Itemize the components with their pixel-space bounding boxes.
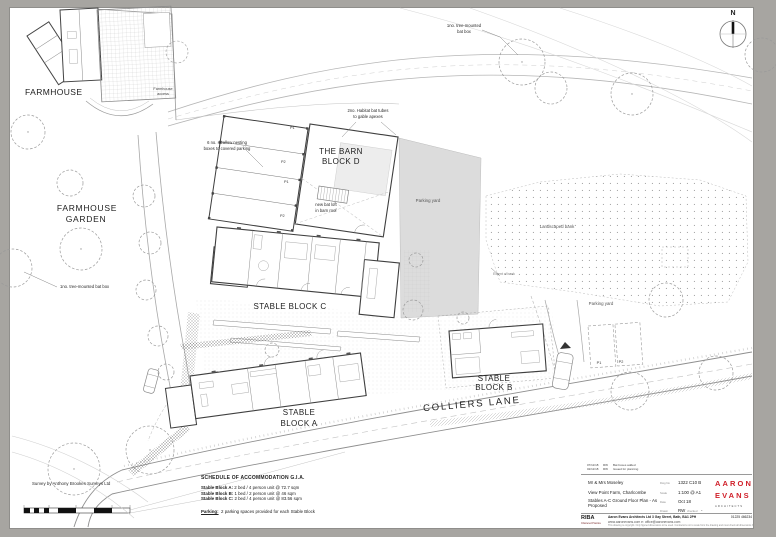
schedule-row-a-name: Stable Block A: bbox=[201, 485, 233, 490]
titleblock-divider bbox=[581, 474, 752, 475]
accommodation-schedule: SCHEDULE OF ACCOMMODATION G.I.A. Stable … bbox=[201, 475, 305, 481]
barn-label: THE BARN bbox=[319, 148, 363, 157]
riba-sub-label: Chartered Practice bbox=[581, 522, 601, 525]
barn-label2: BLOCK D bbox=[322, 158, 360, 167]
stable-c-label: STABLE BLOCK C bbox=[253, 303, 326, 312]
farmhouse-garden-label2: GARDEN bbox=[66, 215, 107, 225]
north-arrow-icon bbox=[720, 20, 746, 48]
drawn-label: Drawn bbox=[660, 509, 668, 513]
copyright-note: This drawing is copyright. Only figured … bbox=[608, 524, 753, 527]
rev-date: 02/11/18 bbox=[587, 468, 603, 472]
parking-yard-label: Parking yard bbox=[416, 199, 441, 204]
schedule-title: SCHEDULE OF ACCOMMODATION G.I.A. bbox=[201, 475, 305, 481]
stable-a-label2: BLOCK A bbox=[280, 420, 317, 429]
tree-bat-box-top-note2: bat box bbox=[457, 30, 471, 35]
schedule-row-b-name: Stable Block B: bbox=[201, 491, 233, 496]
schedule-row-a-desc: 2 bed / 4 person unit @ 72.7 sqm bbox=[234, 485, 299, 490]
parking-yard-right-label: Parking yard bbox=[589, 302, 614, 307]
schedule-row-b-desc: 1 bed / 2 person unit @ 46 sqm bbox=[234, 491, 295, 496]
schedule-parking-label: Parking: bbox=[201, 509, 219, 514]
farmhouse-building bbox=[27, 6, 188, 116]
client-value: Mr & Mrs Moseley bbox=[588, 480, 623, 485]
schedule-row-c-name: Stable Block C: bbox=[201, 496, 233, 501]
extent-note-label: Extent of bank bbox=[493, 273, 515, 277]
riba-logo: RIBA bbox=[581, 515, 594, 521]
schedule-row-c-desc: 2 bed / 4 person unit @ 83.56 sqm bbox=[234, 496, 301, 501]
site-plan-drawing: FARMHOUSE Farmhouse access FARMHOUSE GAR… bbox=[0, 0, 776, 537]
rev-by: RW bbox=[603, 468, 613, 472]
bay-p1: P1 bbox=[290, 126, 295, 130]
drawing-title-value: Stables A-C Ground Floor Plan - As Propo… bbox=[588, 499, 660, 509]
revision-row: 02/11/18 RW Issued for planning bbox=[587, 468, 638, 472]
bat-loft-note2: in barn roof bbox=[315, 209, 336, 214]
bay-right-p2: P2 bbox=[619, 360, 624, 364]
farmhouse-access-label2: access bbox=[157, 92, 169, 96]
bay-p2b: P2 bbox=[280, 214, 285, 218]
bay-p1b: P1 bbox=[284, 180, 289, 184]
checked-value: - bbox=[701, 508, 702, 513]
bay-p2: P2 bbox=[281, 160, 286, 164]
farmhouse-label: FARMHOUSE bbox=[25, 88, 82, 98]
bat-tubes-note2: to gable apexes bbox=[353, 115, 383, 120]
project-value: View Point Farm, Charlcombe bbox=[588, 490, 646, 495]
schedule-row-a: Stable Block A: 2 bed / 4 person unit @ … bbox=[201, 485, 299, 490]
revision-table: 07/11/18 RW Bat boxes added 02/11/18 RW … bbox=[587, 464, 638, 471]
north-label: N bbox=[730, 10, 735, 18]
schedule-row-b: Stable Block B: 1 bed / 2 person unit @ … bbox=[201, 491, 296, 496]
date-label: Date bbox=[660, 500, 666, 504]
schedule-parking-row: Parking: 2 parking spaces provided for e… bbox=[201, 509, 315, 514]
tree-bat-box-left-note: 1no. tree-mounted bat box bbox=[60, 285, 109, 290]
farmhouse-garden-label: FARMHOUSE bbox=[57, 204, 117, 214]
scale-bar bbox=[24, 505, 130, 513]
scale-value: 1:100 @ A1 bbox=[678, 490, 701, 495]
logo-architects: ARCHITECTS bbox=[715, 505, 743, 508]
dwgno-label: Dwg No bbox=[660, 481, 670, 485]
bay-right-p1: P1 bbox=[597, 361, 602, 365]
date-value: Oct 18 bbox=[678, 499, 691, 504]
logo-aaron: AARON bbox=[715, 479, 755, 488]
survey-credit: Survey by Anthony Brookes Surveys Ltd bbox=[32, 482, 110, 487]
barn-building bbox=[295, 124, 398, 237]
car-left bbox=[143, 368, 160, 394]
schedule-parking-desc: 2 parking spaces provided for each Stabl… bbox=[221, 509, 315, 514]
checked-label: checked bbox=[687, 509, 697, 513]
covered-parking-building bbox=[208, 115, 309, 232]
stable-a-label: STABLE bbox=[283, 409, 316, 418]
dwgno-value: 1322 C10 B bbox=[678, 480, 701, 485]
swallow-boxes-note2: boxes to covered parking bbox=[204, 147, 251, 152]
plan-linework bbox=[0, 0, 776, 537]
schedule-row-c: Stable Block C: 2 bed / 4 person unit @ … bbox=[201, 496, 302, 501]
drawn-value: RW bbox=[678, 508, 685, 513]
titleblock-divider2 bbox=[581, 513, 752, 514]
practice-phone: 01225 466234 bbox=[731, 515, 752, 519]
landscaped-bank-area bbox=[486, 174, 748, 306]
rev-desc: Issued for planning bbox=[613, 468, 638, 472]
practice-address: Aaron Evans Architects Ltd 3 Gay Street,… bbox=[608, 515, 696, 519]
scale-label: Scale bbox=[660, 491, 667, 495]
stable-b-label2: BLOCK B bbox=[475, 384, 512, 393]
marker-triangle bbox=[560, 342, 571, 349]
landscaped-bank-label: Landscaped bank bbox=[540, 225, 575, 230]
farmhouse-access-label: Farmhouse bbox=[153, 87, 172, 91]
logo-evans: EVANS bbox=[715, 491, 755, 500]
